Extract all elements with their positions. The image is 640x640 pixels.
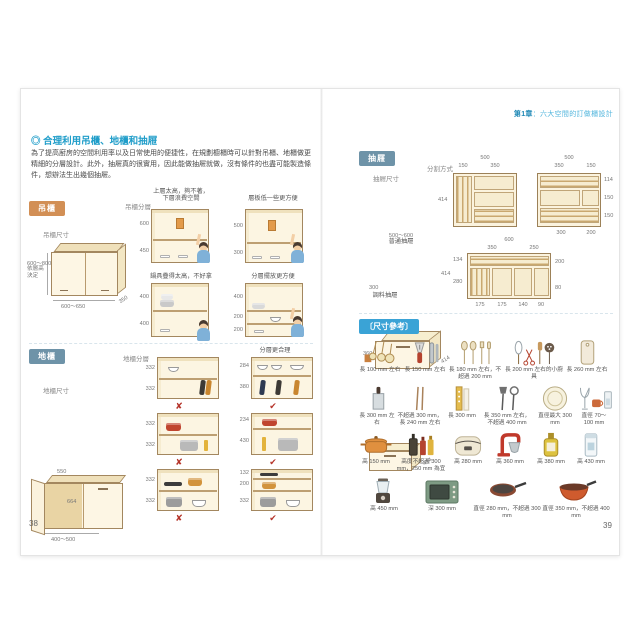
sizeref-item: 高 360 mm: [489, 431, 531, 474]
bowl-icon: [270, 317, 281, 322]
item-label: 直徑 280 mm，不超過 300 mm: [473, 506, 541, 521]
frying-pan-icon: [485, 477, 529, 505]
pot-icon: [166, 423, 181, 431]
cabinet-drawing: [157, 413, 219, 455]
section-divider: [359, 313, 613, 314]
hanging-fig-3: 400 400: [137, 283, 209, 337]
sizeref-item: 長 200 mm 左右的小廚具: [503, 339, 565, 382]
compartment: [474, 192, 514, 207]
dim-value: 234: [237, 413, 249, 428]
size-reference-badge: 〔尺寸參考〕: [359, 319, 419, 334]
dish-icon: [254, 330, 264, 333]
item-label: 長 300 mm 左右: [357, 413, 397, 428]
sizeref-item: 長 350 mm 左右，不超過 400 mm: [481, 385, 533, 428]
sizeref-item: 長 150 mm 左右: [403, 339, 447, 382]
viewB-row1: 114: [604, 177, 613, 183]
compartment: [540, 208, 599, 223]
sizeref-item: 高 150 mm: [357, 431, 395, 474]
dimension-rail: 332 332: [143, 413, 157, 455]
dim-value: 400: [137, 283, 149, 310]
pot-icon: [260, 497, 276, 507]
door-handle: [101, 290, 109, 292]
item-label: 高 430 mm: [577, 459, 605, 466]
good-mark: ✔: [263, 458, 283, 467]
whisk-scissors-ladle-icon: [512, 339, 556, 366]
dimension-rail: 500 300: [231, 209, 245, 263]
item-label: 高 150 mm: [362, 459, 390, 466]
dimension-rail: 132 200 332: [237, 469, 251, 511]
spoons-forks-icon: [455, 339, 495, 366]
tall-container-icon: [571, 431, 611, 458]
floor-inner-dim: 664: [67, 499, 76, 505]
door-split-line: [85, 253, 86, 295]
cabinet-front-face: [43, 483, 123, 529]
compartment: [540, 190, 580, 206]
viewC-bottom1: 175: [469, 302, 491, 308]
sizeref-item: 深 300 mm: [411, 477, 473, 521]
dim-value: 332: [237, 490, 249, 511]
viewB-bottom1: 300: [541, 230, 581, 236]
cabinet-drawing: [157, 357, 219, 399]
cereal-box-icon: [176, 218, 184, 229]
hanging-height-note: 依層高決定: [27, 266, 47, 280]
spice-drawer-name: 調料抽屜: [363, 292, 407, 300]
hanging-cabinet-badge: 吊櫃: [29, 201, 65, 216]
dim-value: 400: [137, 310, 149, 337]
dim-value: 450: [137, 240, 149, 263]
shelf-line: [153, 310, 207, 312]
pot-icon: [160, 300, 174, 307]
steamer-pot-icon: [180, 440, 198, 451]
viewB-row2: 150: [604, 195, 613, 201]
dish-icon: [178, 255, 188, 258]
chapter-number: 第1章: [514, 111, 533, 118]
dim-value: 430: [237, 428, 249, 455]
viewB-row3: 150: [604, 213, 613, 219]
pot-icon: [252, 303, 265, 309]
viewA-col1: 150: [453, 163, 473, 169]
sizeref-item: 高度不超過 300 mm，250 mm 為宜: [395, 431, 447, 474]
floor-cabinet-badge: 地櫃: [29, 349, 65, 364]
floor-fig-good-3: 132 200 332: [237, 469, 313, 511]
book-spine: [320, 89, 323, 555]
hanging-size-label: 吊櫃尺寸: [43, 229, 69, 239]
hanging-fig-2: 500 300: [231, 209, 303, 263]
floor-cabinet-size-drawing: 550 664 400～500: [25, 469, 133, 541]
stand-mixer-icon: [490, 431, 530, 458]
dish-icon: [270, 256, 280, 259]
item-label: 高 450 mm: [370, 506, 398, 513]
sizeref-item: 高 280 mm: [447, 431, 489, 474]
section-divider: [29, 343, 313, 344]
spatula-skimmer-icon: [487, 385, 527, 412]
drawer-split-view-b: [537, 173, 601, 227]
viewA-col2: 350: [473, 163, 517, 169]
dimension-line: [47, 253, 48, 295]
shelf-line: [253, 490, 311, 492]
hanging-fig-4: 400 200 200: [231, 283, 303, 337]
casserole-icon: [356, 431, 396, 458]
sizeref-item: 直徑 70～100 mm: [577, 385, 611, 428]
compartment: [474, 209, 514, 223]
book-spread: 第1章：六大空間的訂做櫃設計 ◎ 合理利用吊櫃、地櫃和抽屜 為了提高廚房的空間利…: [20, 88, 620, 556]
viewC-bottom4: 90: [533, 302, 549, 308]
sizeref-item: 長 100 mm 左右: [357, 339, 403, 382]
dim-value: 200: [231, 310, 243, 324]
compartment: [514, 268, 532, 296]
item-label: 不超過 300 mm，長 240 mm 左右: [397, 413, 443, 428]
cups-glasses-icon: [574, 385, 614, 412]
hanging-depth-dim: 350: [118, 295, 129, 305]
dinner-plate-icon: [535, 385, 575, 412]
dimension-rail: 332 332: [143, 357, 157, 399]
item-label: 長 100 mm 左右: [360, 367, 401, 374]
viewA-total: 500: [453, 155, 517, 161]
hanging-fig-1: 600 450: [137, 209, 209, 263]
viewC-bottom2: 175: [491, 302, 513, 308]
door-split-line: [83, 484, 84, 528]
pot-icon: [188, 478, 202, 486]
person-figure: [289, 239, 307, 265]
door-handle: [60, 290, 68, 292]
compartment: [474, 176, 514, 190]
compartment: [534, 268, 549, 296]
sizeref-item: 長 300 mm: [443, 385, 481, 428]
hanging-cabinet-size-drawing: 600～800 依層高決定 600～650 350: [27, 239, 131, 313]
steamer-pot-icon: [278, 438, 298, 451]
bad-mark: ✘: [169, 514, 189, 523]
viewC-total: 600: [467, 237, 551, 243]
compartment: [492, 268, 512, 296]
item-label: 長 200 mm 左右的小廚具: [503, 367, 565, 382]
pan-icon: [164, 482, 182, 486]
shelf-line: [159, 434, 217, 436]
dimension-line: [53, 300, 115, 301]
utensil-compartment: [456, 176, 472, 223]
chopstick-box-icon: [445, 385, 479, 412]
viewB-col2: 150: [581, 163, 601, 169]
peeler-opener-icon: [405, 339, 445, 366]
floor-fig-bad-2: 332 332: [143, 413, 219, 455]
sizeref-item: 直徑最大 300 mm: [533, 385, 577, 428]
person-figure: [289, 313, 307, 339]
item-label: 高 360 mm: [496, 459, 524, 466]
dimension-rail: 332 332: [143, 469, 157, 511]
dim-value: 332: [143, 357, 155, 378]
shelf-line: [253, 478, 311, 480]
floor-good-caption: 分層更合理: [237, 347, 313, 355]
floor-fig-bad-3: 332 332: [143, 469, 219, 511]
hanging-fig2-caption: 層板低一些更方便: [233, 195, 313, 203]
dim-value: 284: [237, 357, 249, 375]
item-label: 長 180 mm 左右，不超過 200 mm: [447, 367, 503, 382]
bottle-icon: [204, 440, 208, 451]
cabinet-front-face: [51, 252, 118, 296]
item-label: 長 260 mm 左右: [567, 367, 608, 374]
open-interior: [44, 484, 82, 528]
cabinet-top-face: [46, 475, 126, 483]
dish-icon: [160, 255, 170, 258]
floor-size-label: 地櫃尺寸: [43, 385, 69, 395]
item-label: 長 350 mm 左右，不超過 400 mm: [481, 413, 533, 428]
rice-cooker-icon: [448, 431, 488, 458]
bad-mark: ✘: [169, 402, 189, 411]
dim-value: 332: [143, 413, 155, 434]
sizeref-item: 高 430 mm: [571, 431, 611, 474]
floor-width-dim: 400～500: [51, 535, 75, 543]
sauce-bottles-icon: [401, 431, 441, 458]
hanging-width-dim: 600～650: [61, 302, 85, 310]
pot-icon: [262, 482, 276, 489]
dim-value: 500: [231, 209, 243, 243]
chapter-separator: ：: [533, 111, 540, 118]
sizeref-row-3: 高 150 mm 高度不超過 300 mm，250 mm 為宜 高 280 mm…: [357, 431, 613, 474]
viewC-col2: 250: [517, 245, 551, 251]
sizeref-row-1: 長 100 mm 左右 長 150 mm 左右 長 180 mm 左右，不超過 …: [357, 339, 613, 382]
normal-drawer-name: 普通抽屜: [377, 238, 425, 246]
dimension-rail: 234 430: [237, 413, 251, 455]
viewC-side: 414: [441, 271, 450, 277]
dim-value: 332: [143, 490, 155, 511]
book-scan: 第1章：六大空間的訂做櫃設計 ◎ 合理利用吊櫃、地櫃和抽屜 為了提高廚房的空間利…: [0, 0, 640, 640]
kettle-icon: [290, 365, 304, 370]
sizeref-row-4: 高 450 mm 深 300 mm 直徑 280 mm，不超過 300 mm 直…: [357, 477, 613, 521]
dim-value: 200: [231, 324, 243, 338]
dim-value: 132: [237, 469, 249, 477]
sizeref-item: 直徑 280 mm，不超過 300 mm: [473, 477, 541, 521]
sizeref-row-2: 長 300 mm 左右 不超過 300 mm，長 240 mm 左右 長 300…: [357, 385, 613, 428]
good-mark: ✔: [263, 514, 283, 523]
dimension-rail: 284 380: [237, 357, 251, 399]
drawer-badge: 抽屜: [359, 151, 395, 166]
cabinet-side-face: [117, 243, 126, 294]
person-figure: [195, 239, 213, 265]
bowl-icon: [286, 500, 300, 507]
item-label: 長 150 mm 左右: [405, 367, 446, 374]
floor-fig-good-1: 284 380: [237, 357, 313, 399]
item-label: 高 280 mm: [454, 459, 482, 466]
item-label: 直徑 70～100 mm: [577, 413, 611, 428]
person-figure-crouching: [195, 317, 213, 343]
dimension-rail: 400 200 200: [231, 283, 245, 337]
shelf-line: [253, 428, 311, 430]
drawer-size-label: 抽屜尺寸: [373, 173, 399, 183]
cabinet-top-face: [53, 243, 124, 252]
cutting-board-icon: [259, 380, 266, 395]
page-number-left: 38: [29, 519, 38, 528]
cutting-board-icon: [275, 380, 282, 395]
cutting-board-icon: [567, 339, 607, 366]
viewC-right2: 80: [555, 285, 561, 291]
hanging-fig3-caption: 鍋具疊得太高，不好拿: [141, 273, 221, 281]
drawer-split-view-a: [453, 173, 517, 227]
cereal-box-icon: [268, 220, 276, 231]
sizeref-item: 直徑 350 mm，不超過 400 mm: [541, 477, 611, 521]
door-handle: [98, 488, 108, 490]
item-label: 直徑最大 300 mm: [533, 413, 577, 428]
cabinet-drawing: [251, 413, 313, 455]
item-label: 直徑 350 mm，不超過 400 mm: [541, 506, 611, 521]
section-title: ◎ 合理利用吊櫃、地櫃和抽屜: [31, 133, 317, 147]
blender-icon: [364, 477, 404, 505]
measuring-spoons-icon: [360, 339, 400, 366]
floor-top-dim: 550: [57, 469, 66, 475]
chapter-title: 六大空間的訂做櫃設計: [540, 111, 613, 118]
bad-mark: ✘: [169, 458, 189, 467]
dim-value: 332: [143, 434, 155, 455]
page-number-right: 39: [603, 521, 612, 530]
spice-width-dim: 300: [369, 285, 378, 291]
floor-fig-bad-1: 332 332: [143, 357, 219, 399]
viewB-bottom2: 200: [581, 230, 601, 236]
dimension-rail: 400 400: [137, 283, 151, 337]
bowl-icon: [168, 367, 179, 372]
dimension-rail: 600 450: [137, 209, 151, 263]
hanging-fig1-caption-line2: 下層浪費空間: [141, 195, 221, 203]
sizeref-item: 長 300 mm 左右: [357, 385, 397, 428]
cabinet-drawing: [251, 469, 313, 511]
cabinet-drawing: [251, 357, 313, 399]
item-label: 深 300 mm: [428, 506, 456, 513]
viewC-col1: 350: [467, 245, 517, 251]
item-label: 長 300 mm: [448, 413, 476, 420]
sizeref-item: 長 180 mm 左右，不超過 200 mm: [447, 339, 503, 382]
dimension-line: [45, 533, 99, 534]
viewA-side: 414: [438, 197, 447, 203]
split-method-label: 分割方式: [427, 163, 453, 173]
toaster-oven-icon: [420, 477, 464, 505]
pot-icon: [166, 497, 182, 507]
bowl-icon: [271, 365, 282, 370]
drawer-split-view-c: [467, 253, 551, 299]
shelf-line: [159, 490, 217, 492]
utensil-compartment: [470, 268, 490, 296]
sizeref-item: 高 450 mm: [357, 477, 411, 521]
dim-value: 332: [143, 469, 155, 490]
pot-icon: [161, 294, 173, 300]
dim-value: 332: [143, 378, 155, 399]
intro-paragraph: 為了提高廚房的空間利用率以及日常使用的便捷性，在規劃櫥櫃時可以針對吊櫃、地櫃做更…: [31, 148, 311, 181]
viewC-left2: 280: [453, 279, 462, 285]
hanging-fig4-caption: 分層擺放更方便: [233, 273, 313, 281]
compartment: [540, 176, 599, 188]
chopsticks-icon: [405, 385, 435, 412]
viewB-total: 500: [537, 155, 601, 161]
bowl-icon: [257, 365, 268, 370]
cutting-board-icon: [293, 380, 300, 395]
viewC-right1: 200: [555, 259, 564, 265]
dim-value: 600: [137, 209, 149, 240]
dish-icon: [252, 256, 262, 259]
compartment: [582, 190, 599, 206]
pan-icon: [260, 473, 278, 476]
cutting-board-icon: [205, 380, 212, 395]
compartment: [470, 256, 549, 266]
item-label: 高 380 mm: [537, 459, 565, 466]
viewC-left1: 134: [453, 257, 462, 263]
dim-value: 200: [237, 477, 249, 490]
chapter-header: 第1章：六大空間的訂做櫃設計: [361, 109, 613, 119]
good-mark: ✔: [263, 402, 283, 411]
oil-bottle-icon: [531, 431, 571, 458]
bowl-icon: [192, 500, 206, 507]
sizeref-item: 不超過 300 mm，長 240 mm 左右: [397, 385, 443, 428]
sizeref-item: 高 380 mm: [531, 431, 571, 474]
cabinet-drawing: [157, 469, 219, 511]
viewB-col1: 350: [537, 163, 581, 169]
pot-icon: [262, 419, 277, 426]
dim-value: 380: [237, 375, 249, 399]
shelf-line: [253, 375, 311, 377]
bottle-icon: [262, 437, 266, 451]
dim-value: 400: [231, 283, 243, 310]
floor-fig-good-2: 234 430: [237, 413, 313, 455]
wok-icon: [554, 477, 598, 505]
item-label: 高度不超過 300 mm，250 mm 為宜: [395, 459, 447, 474]
dish-icon: [160, 329, 170, 332]
kitchen-knife-icon: [360, 385, 394, 412]
viewC-bottom3: 140: [513, 302, 533, 308]
sizeref-item: 長 260 mm 左右: [565, 339, 609, 382]
dim-value: 300: [231, 243, 243, 263]
